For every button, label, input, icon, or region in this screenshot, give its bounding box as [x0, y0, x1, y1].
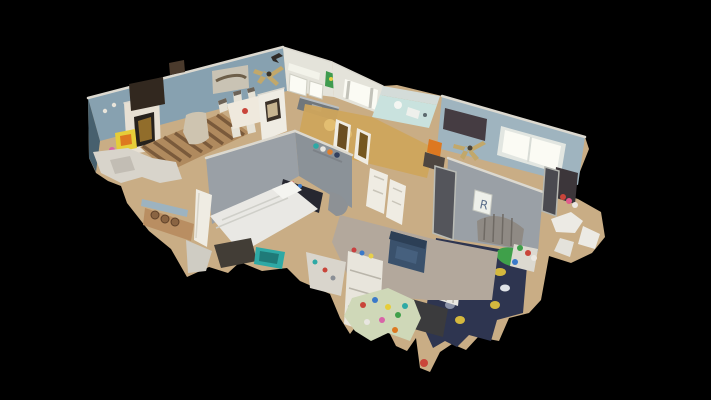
- recliner-chair: [183, 112, 209, 145]
- fire-screen: [138, 117, 152, 142]
- closet-dark-door: [433, 166, 456, 240]
- nursery: R: [423, 96, 600, 348]
- dollhouse-render: R: [0, 0, 711, 400]
- right-doorway: [542, 167, 559, 216]
- red-cup: [420, 359, 428, 367]
- letter-r-sign: R: [473, 190, 492, 215]
- bathroom-fixture: [394, 101, 402, 109]
- table-centerpiece: [242, 108, 248, 114]
- matterport-dollhouse-viewport[interactable]: R: [0, 0, 711, 400]
- closet-door-1: [366, 168, 388, 214]
